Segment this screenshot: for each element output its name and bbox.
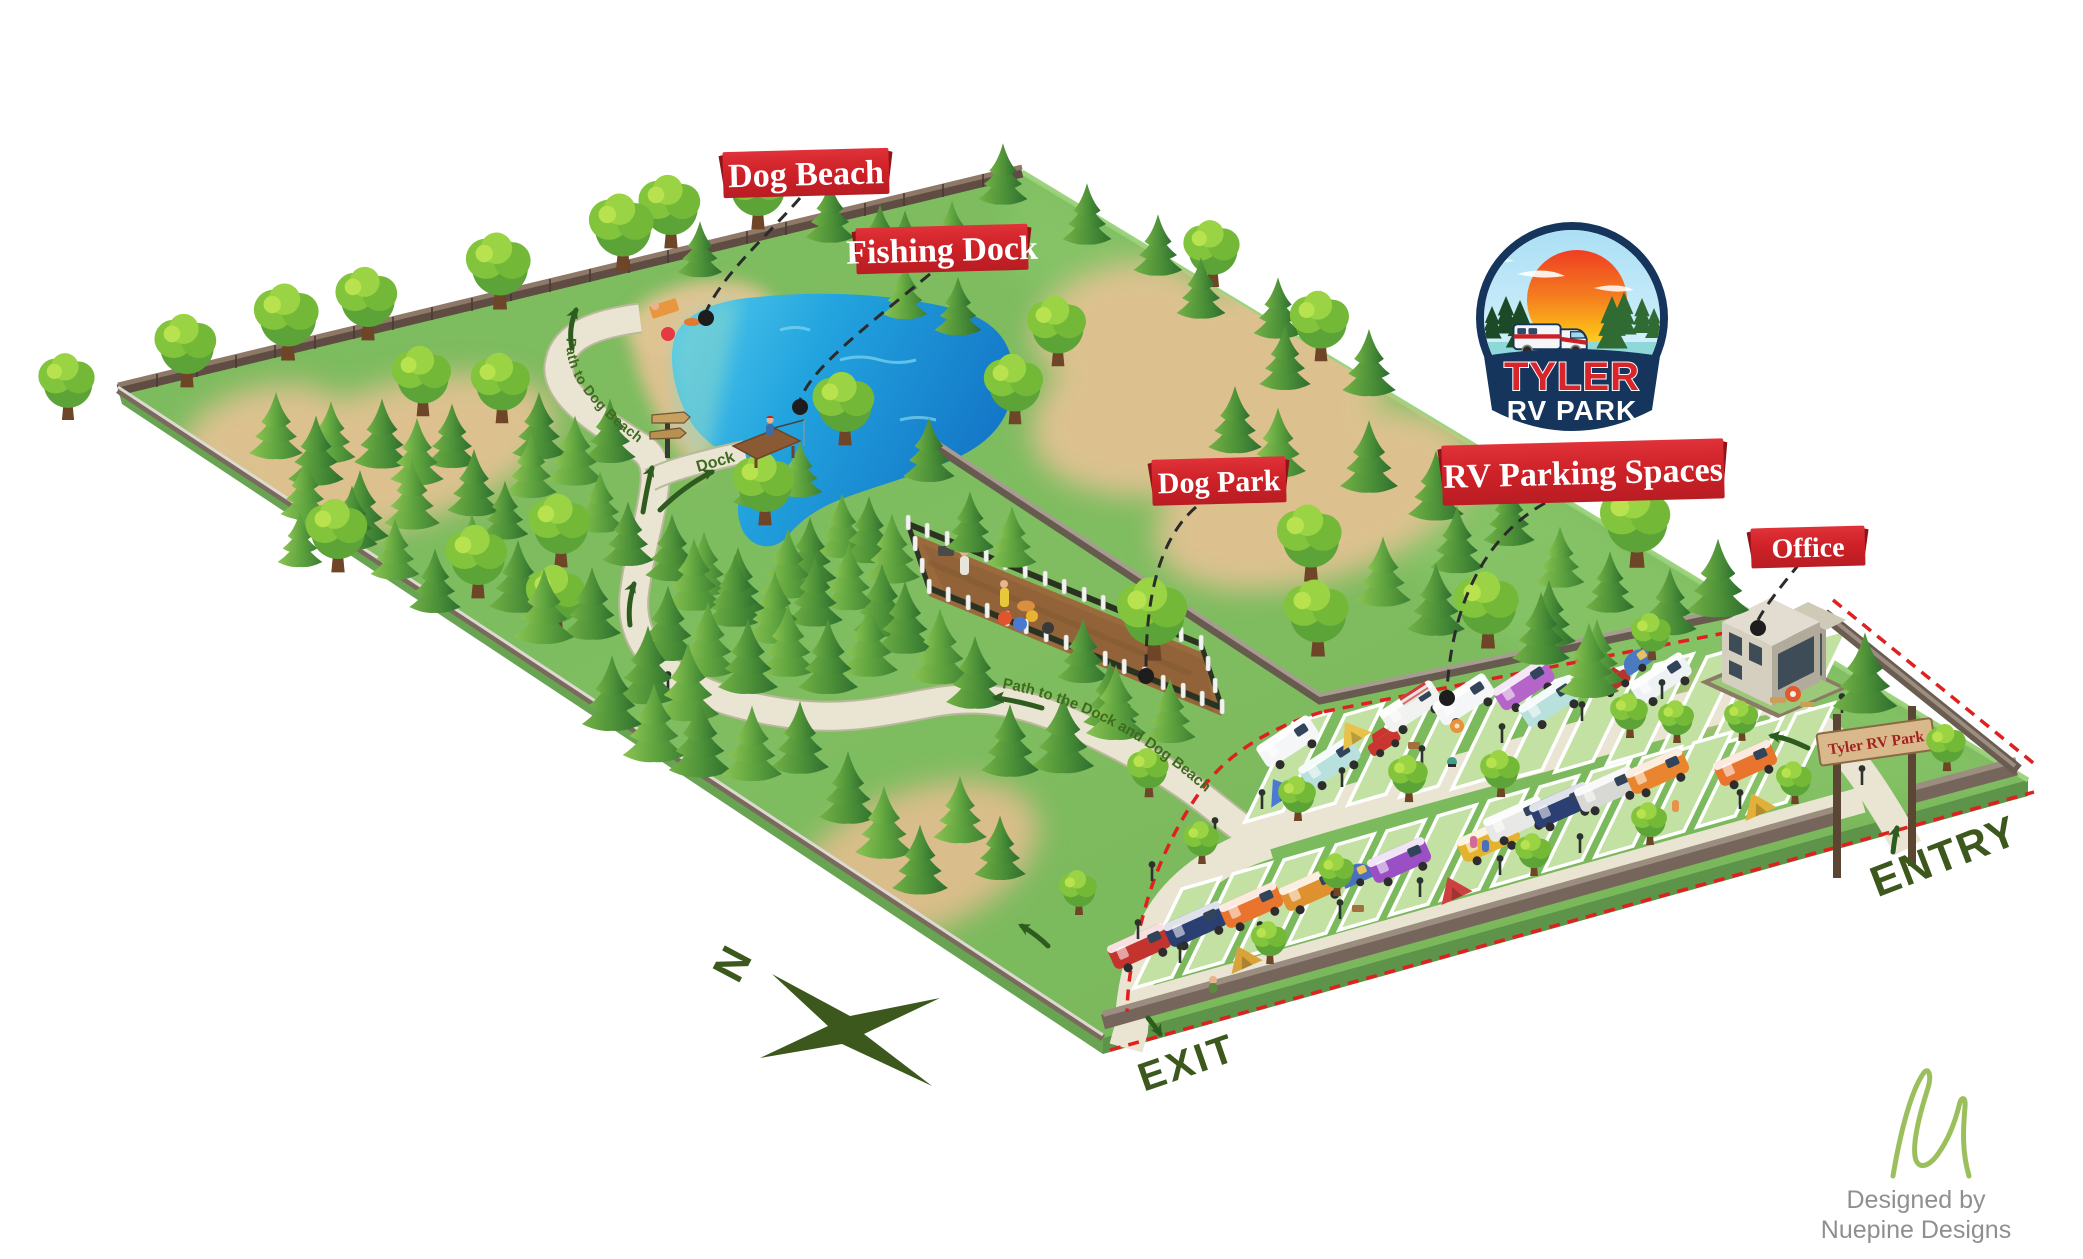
svg-text:RV Parking Spaces: RV Parking Spaces bbox=[1443, 452, 1724, 496]
svg-text:Dog Beach: Dog Beach bbox=[728, 154, 885, 195]
svg-text:Nuepine Designs: Nuepine Designs bbox=[1821, 1216, 2011, 1244]
svg-text:N: N bbox=[704, 939, 762, 990]
svg-text:Dog Park: Dog Park bbox=[1157, 464, 1281, 500]
svg-text:RV PARK: RV PARK bbox=[1507, 395, 1637, 426]
svg-text:Office: Office bbox=[1771, 532, 1845, 565]
svg-text:Fishing Dock: Fishing Dock bbox=[846, 230, 1039, 272]
svg-text:Designed by: Designed by bbox=[1847, 1186, 1986, 1214]
svg-text:TYLER: TYLER bbox=[1504, 355, 1640, 399]
